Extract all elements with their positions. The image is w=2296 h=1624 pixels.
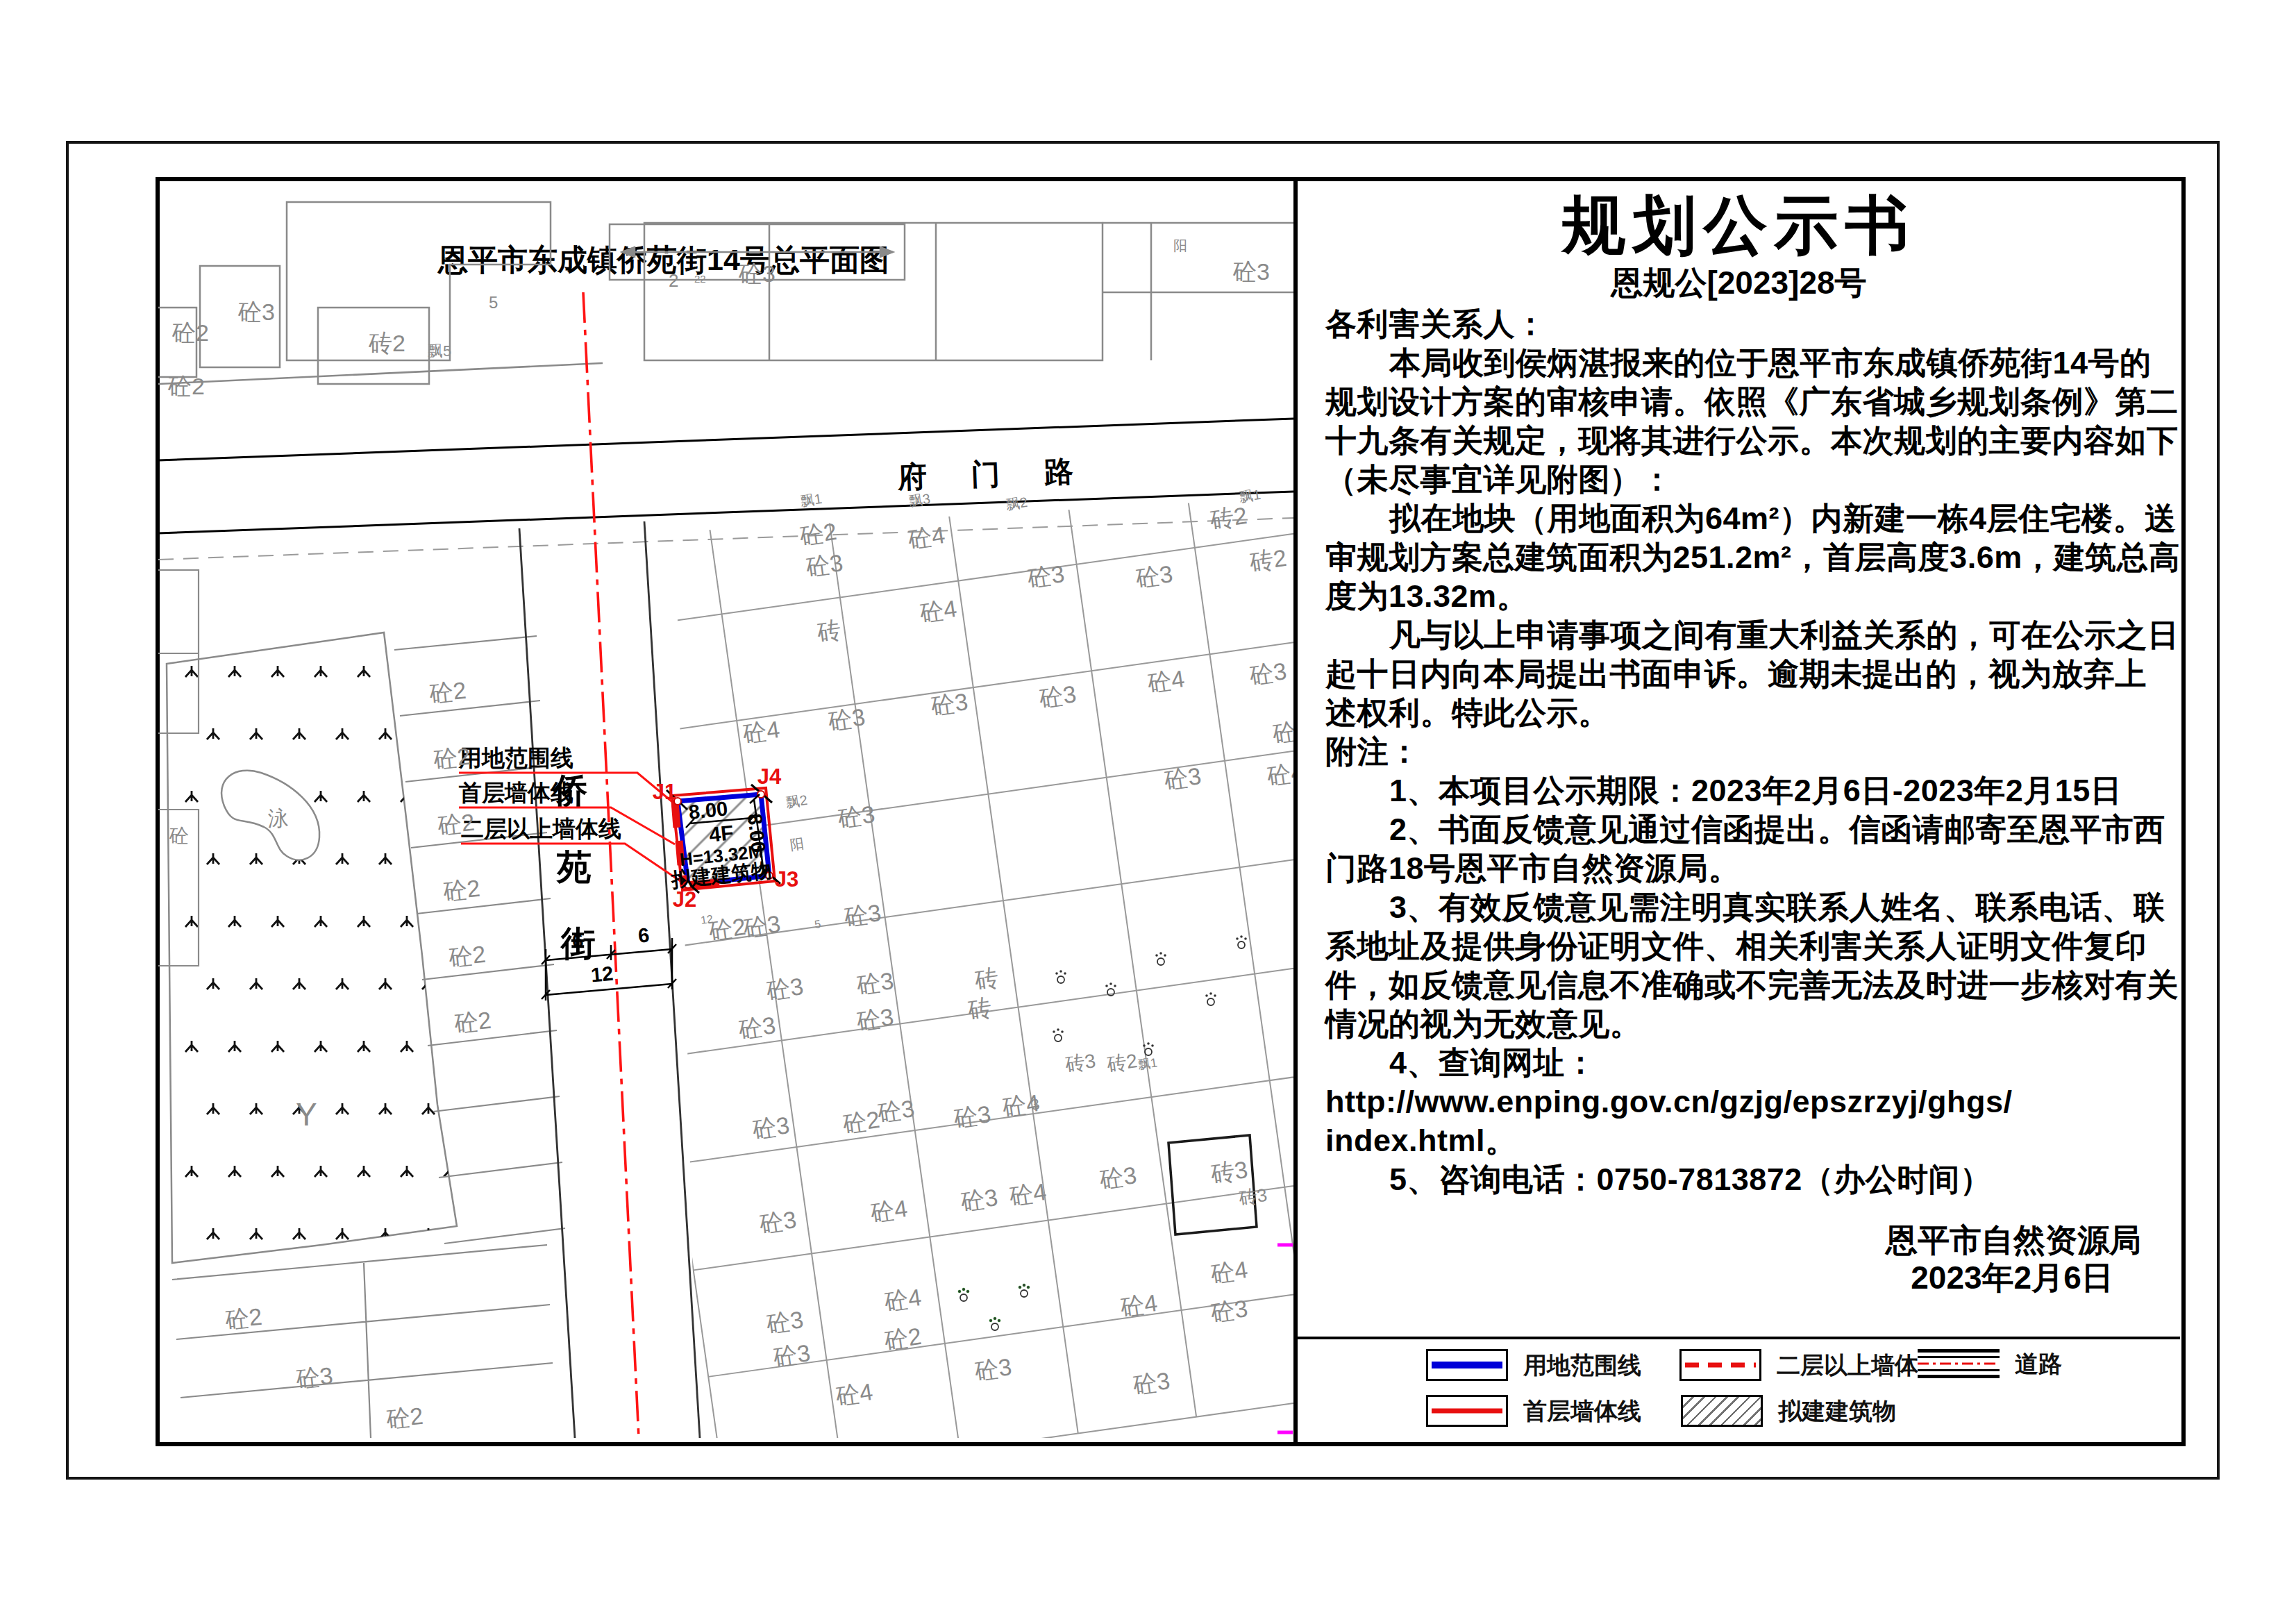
tree-symbol [207,853,219,864]
cadastral-grid [589,424,1293,1438]
tree-symbol [293,728,305,739]
parcel-label: 阳 [789,835,805,853]
parcel-label: 砖2 [368,330,405,356]
parcel-label: 砼2 [447,941,487,971]
tree-symbol [444,916,456,927]
road-name-label: 府 门 路 [896,454,1092,494]
tree-symbol [271,916,284,927]
parcel-label: 砼2 [442,875,482,905]
notice-panel: 规划公示书 恩规公[2023]28号 各利害关系人：本局收到侯炳湛报来的位于恩平… [1298,181,2180,1337]
tree-symbol [465,853,478,864]
tree-symbol [422,853,435,864]
tree-symbol [185,1041,198,1052]
parcel-label: 5 [489,293,498,312]
tree-symbol [465,978,478,989]
tree-symbol [207,978,219,989]
tree-symbol [401,1166,413,1177]
tree-symbol [358,1041,370,1052]
tree-symbol [250,978,262,989]
tree-symbol [293,1228,305,1239]
pond-label: 泳 [268,807,289,830]
tree-symbol [315,666,327,677]
parcel-label: 砼4 [741,716,782,747]
building-floors: 4F [708,821,735,846]
notice-line: 1、本项目公示期限：2023年2月6日-2023年2月15日 [1325,771,2169,810]
parcel-label: 砼4 [882,1284,923,1315]
tree-symbol [185,916,198,927]
notice-line: 规划设计方案的审核申请。依照《广东省城乡规划条例》第二 [1325,383,2169,421]
signature-block: 恩平市自然资源局 2023年2月6日 [1886,1221,2141,1296]
legend-label: 拟建建筑物 [1778,1395,1896,1427]
notice-line: 2、书面反馈意见通过信函提出。信函请邮寄至恩平市西 [1325,810,2169,849]
parcel-label: 砼4 [1265,758,1293,789]
street-dim-left: 6 [571,929,585,952]
tree-symbol [250,1228,262,1239]
tree-symbol [250,728,262,739]
j1-label: J1 [653,780,676,804]
notice-line: 5、咨询电话：0750-7813872（办公时间） [1325,1160,2169,1199]
parcel-label: 砼4 [1271,716,1293,747]
notice-line: 情况的视为无效意见。 [1325,1005,2169,1044]
parcel-label: 砼2 [167,373,205,399]
parcel-label: 砼3 [1131,1367,1172,1398]
tree-symbol [336,853,349,864]
tree-symbol [185,791,198,802]
parcel-label: 砼4 [834,1378,875,1409]
site-plan-svg: 恩平市东成镇侨苑街14号总平面图 府 门 路 [158,181,1293,1438]
tree-symbol [228,1166,241,1177]
fumen-road: 府 门 路 [158,419,1293,560]
parcel-label: 砖 [815,617,843,646]
parcel-label: 砖2 [1248,544,1289,576]
parcel-label: 砼2 [453,1007,493,1037]
tree-symbol [250,853,262,864]
parcel-label: 砼4 [1209,1256,1250,1287]
parcel-label: 砼3 [1025,560,1066,592]
parcel-label: 砼2 [385,1403,425,1432]
parcel-label: 砖3 [1238,1184,1268,1209]
parcel-label: 飘2 [1005,494,1028,512]
parcel-label: 砼3 [764,973,805,1004]
first-wall-line-symbol [1426,1395,1508,1427]
callout-boundary: 用地范围线 [458,745,573,771]
callout-first-wall: 首层墙体线 [458,780,573,805]
legend-panel: 用地范围线二层以上墙体线道路首层墙体线拟建建筑物 [1298,1339,2180,1438]
parcel-label: 砼3 [929,688,970,719]
tree-symbol [465,1228,478,1239]
parcel-label: 阳 [1173,238,1187,253]
parcel-label: 砖3 [1064,1050,1097,1075]
j4-label: J4 [757,764,782,789]
notice-line: 述权利。特此公示。 [1325,694,2169,733]
parcel-label: 12 [700,913,714,926]
notice-line: http://www.enping.gov.cn/gzjg/epszrzyj/g… [1325,1082,2169,1121]
tree-symbol [315,1041,327,1052]
tree-symbol [465,1103,478,1114]
parcel-label: 砼3 [751,1112,791,1143]
parcel-label: 砼3 [973,1353,1014,1384]
tree-symbol [228,666,241,677]
parcel-label: 2 [669,270,678,291]
notice-line: 件，如反馈意见信息不准确或不完善无法及时进一步核对有关 [1325,966,2169,1005]
parcel-label: 砼2 [882,1323,923,1354]
tree-symbol [422,728,435,739]
tree-symbol [185,666,198,677]
street-dim-right: 6 [637,923,651,946]
tree-symbol [250,1103,262,1114]
notice-line: 4、查询网址： [1325,1044,2169,1082]
map-title: 恩平市东成镇侨苑街14号总平面图 [437,243,889,276]
parcel-label: 砖2 [1208,502,1249,533]
proposed-building: 8.00 8.00 4F H=13.32M 拟建建筑物 J1 J2 J3 J4 [653,764,798,912]
parcel-label: 砼3 [875,1095,916,1126]
tree-symbol [207,1103,219,1114]
parcel-label: 砼4 [1007,1178,1048,1209]
tree-symbol [228,916,241,927]
parcel-label: 砼4 [1146,665,1187,696]
j3-label: J3 [775,867,798,891]
parcel-label: 砼3 [764,1306,805,1337]
tree-symbol [358,791,370,802]
notice-line: index.html。 [1325,1121,2169,1160]
parcel-label: 砼2 [798,518,839,549]
legend-label: 首层墙体线 [1523,1395,1641,1427]
site-plan-panel: 恩平市东成镇侨苑街14号总平面图 府 门 路 [158,181,1293,1438]
parcel-label: 砼4 [869,1195,910,1226]
notice-line: 起十日内向本局提出书面申诉。逾期未提出的，视为放弃上 [1325,655,2169,694]
parcel-label: 砼3 [1209,1295,1250,1326]
tree-symbol [379,853,392,864]
notice-body: 各利害关系人：本局收到侯炳湛报来的位于恩平市东成镇侨苑街14号的规划设计方案的审… [1325,305,2169,1199]
parcel-label: 5 [814,918,821,930]
y-label: Y [296,1096,317,1132]
tree-symbol [271,1041,284,1052]
parcel-label: 飘2 [785,792,808,810]
parcel-label: 砖 [973,964,1000,994]
parcel-label: 22 [694,273,706,285]
parcel-label: 飘3 [907,491,931,509]
legend-label: 用地范围线 [1523,1349,1641,1381]
notice-doc-number: 恩规公[2023]28号 [1298,262,2180,305]
parcel-label: 砼3 [294,1362,335,1392]
qiaoyuan-street: 侨 苑 街 [519,292,700,1438]
parcel-label: 飘5 [428,342,451,360]
parcel-label: 砼3 [1162,762,1203,794]
boundary-line-symbol [1426,1349,1508,1381]
signature-agency: 恩平市自然资源局 [1886,1221,2141,1259]
tree-symbol [379,728,392,739]
notice-line: 本局收到侯炳湛报来的位于恩平市东成镇侨苑街14号的 [1325,344,2169,383]
parcel-label: 砼3 [959,1184,1000,1215]
parcel-label: 砼3 [855,1003,896,1035]
tree-symbol [444,666,456,677]
parcel-label: 砼3 [826,703,867,735]
building-width-dim: 8.00 [687,797,728,823]
tree-symbol [465,728,478,739]
notice-line: （未尽事宜详见附图）： [1325,460,2169,499]
tree-symbol [422,1103,435,1114]
legend-label: 道路 [2015,1348,2062,1380]
tree-symbol [207,1228,219,1239]
parcel-label: 砼3 [771,1339,812,1371]
parcel-label: 砖 [966,994,994,1024]
parcel-label: 砼3 [1098,1162,1139,1193]
upper-left-block-lines [158,202,1293,384]
parcel-label: 砼3 [237,299,275,325]
tree-symbol [207,728,219,739]
street-dim-total: 12 [590,962,614,987]
tree-symbol [315,791,327,802]
park-area: 泳 Y [167,633,478,1263]
proposed-building-symbol [1681,1395,1763,1427]
upper-wall-line-symbol [1679,1349,1761,1381]
tree-symbol [336,978,349,989]
notice-line: 系地址及提供身份证明文件、相关利害关系人证明文件复印 [1325,927,2169,966]
parcel-label: 砼3 [738,260,776,287]
parcel-label: 砼3 [1037,680,1078,712]
signature-date: 2023年2月6日 [1886,1259,2141,1296]
parcel-label: 砼 [169,825,189,846]
tree-symbol [358,916,370,927]
parcel-label: 砼2 [224,1303,264,1333]
strip-parcel-lines [158,570,565,1438]
parcel-label: 砼3 [804,549,845,580]
parcel-label: 砼4 [1118,1289,1159,1321]
j2-label: J2 [673,887,696,912]
street-left-edge [519,528,575,1438]
notice-line: 附注： [1325,733,2169,771]
notice-line: 拟在地块（用地面积为64m²）内新建一栋4层住宅楼。送 [1325,499,2169,538]
notice-title: 规划公示书 [1298,183,2180,269]
notice-line: 度为13.32m。 [1325,577,2169,616]
tree-symbol [401,916,413,927]
tree-symbol [336,1103,349,1114]
tree-symbol [185,1166,198,1177]
tree-symbol [401,1041,413,1052]
notice-line: 审规划方案总建筑面积为251.2m²，首层高度3.6m，建筑总高 [1325,538,2169,577]
tree-symbol [228,1041,241,1052]
tree-symbol [379,1228,392,1239]
notice-line: 各利害关系人： [1325,305,2169,344]
parcel-label: 砼3 [1134,560,1175,592]
notice-line: 凡与以上申请事项之间有重大利益关系的，可在公示之日 [1325,616,2169,655]
tree-symbol [293,978,305,989]
tree-symbol [358,666,370,677]
tree-symbol [271,666,284,677]
parcel-label: 砖3 [1209,1156,1250,1187]
parcel-label: 砼3 [741,910,782,941]
parcel-label: 砼2 [436,809,476,839]
planning-notice-page: 恩平市东成镇侨苑街14号总平面图 府 门 路 [0,0,2296,1624]
tree-symbol [271,1166,284,1177]
parcel-label: 砼2 [171,319,209,346]
tree-symbol [401,666,413,677]
tree-symbol [379,978,392,989]
parcel-label: 飘1 [799,491,823,509]
tree-symbol [315,916,327,927]
tree-symbol [315,1166,327,1177]
street-centerline [583,292,639,1438]
parcel-label: 砼4 [918,595,959,626]
parcel-label: 砼2 [432,743,472,773]
parcel-label: 砼3 [1248,658,1289,689]
parcel-label: 砼2 [428,677,468,707]
parcel-label: 飘1 [1137,1055,1159,1072]
tree-symbol [336,1228,349,1239]
notice-line: 3、有效反馈意见需注明真实联系人姓名、联系电话、联 [1325,888,2169,927]
notice-line: 门路18号恩平市自然资源局。 [1325,849,2169,888]
parcel-label: 砼3 [757,1206,798,1237]
callout-upper-wall: 二层以上墙体线 [461,816,621,842]
parcel-label: 砼3 [1232,258,1270,285]
parcel-label: 砼2 [841,1106,882,1137]
parcel-label: 3 [1030,1095,1041,1113]
parcel-label: 砼3 [952,1100,993,1132]
parcel-label: 砼3 [836,801,877,832]
parcel-label: 砼4 [906,521,947,553]
parcel-label: 砼3 [842,899,883,930]
tree-symbol [379,1103,392,1114]
parcel-label: 砼3 [737,1012,778,1043]
tree-symbol [358,1166,370,1177]
parcel-label: 砖2 [1105,1050,1139,1075]
road-symbol [1918,1348,2000,1380]
tree-symbol [336,728,349,739]
tree-symbol [444,791,456,802]
street-char-2: 苑 [556,848,592,887]
notice-line: 十九条有关规定，现将其进行公示。本次规划的主要内容如下 [1325,421,2169,460]
parcel-label: 砼3 [855,967,896,998]
